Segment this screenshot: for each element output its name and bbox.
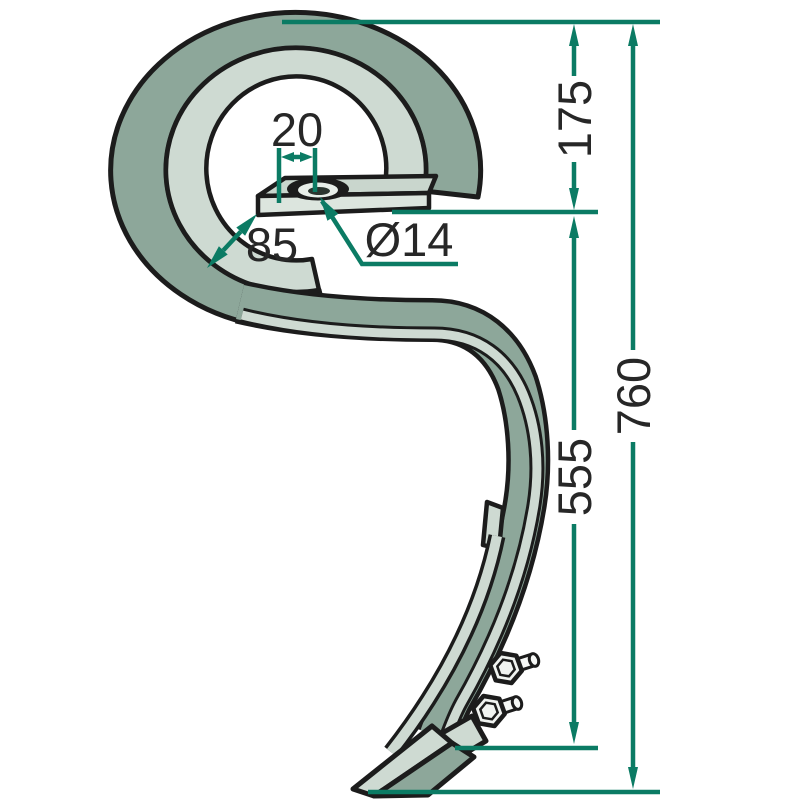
tine-part [111,12,541,796]
dim-label-20: 20 [271,103,323,156]
plate-hole-shadow [308,187,330,195]
dimension-175: 175 [548,24,601,210]
dim-label-555: 555 [548,438,601,516]
arrowhead-down [628,767,638,789]
dim-label-diameter: Ø14 [365,213,454,266]
arrowhead-up [569,24,579,46]
bolt-hex-head [473,696,505,726]
arrowhead-down [569,722,579,744]
bolt-lower [473,695,523,726]
mounting-plate [258,176,436,215]
dim-label-175: 175 [548,80,601,158]
dimension-555: 555 [548,216,601,744]
arrowhead-up [628,24,638,46]
dim-label-85: 85 [246,218,298,271]
arrowhead-up [569,216,579,238]
arrowhead-down [569,188,579,210]
bolt-upper [490,652,540,683]
dim-label-760: 760 [607,357,660,435]
bolt-hex-head [490,653,522,683]
spring-tine-technical-drawing: 175 555 760 20 [0,0,800,800]
drawing-canvas: 175 555 760 20 [0,0,800,800]
dimension-760: 760 [607,24,660,789]
